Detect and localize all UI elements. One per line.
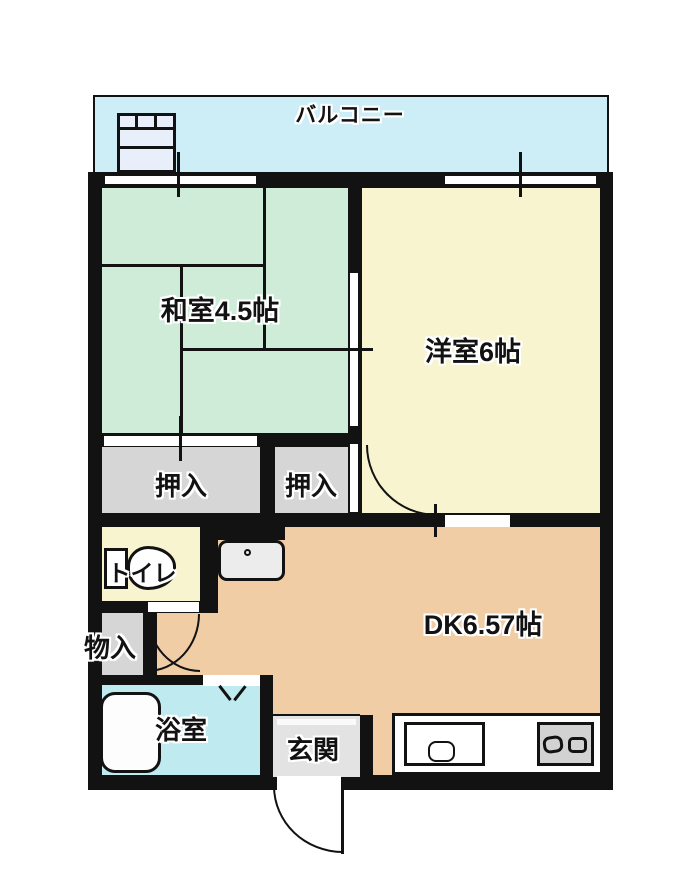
sink-drain [428,741,455,762]
washbasin-faucet [244,549,251,556]
toilet-label: トイレ [98,554,186,588]
washitsu-label: 和室4.5帖 [130,289,310,328]
window-center-tick [519,152,522,197]
tatami-line [182,348,348,351]
yoshitsu-label: 洋室6帖 [383,330,563,369]
balcony-label: バルコニー [255,99,445,129]
washer-pan-divider [154,115,157,127]
stove-burner [568,737,587,753]
bath-door-opening [203,675,260,686]
entrance-label: 玄関 [268,730,358,767]
entrance-door-panel [341,786,344,854]
dk-label: DK6.57帖 [393,603,573,642]
fusuma-center-tick [179,416,182,461]
washer-pan-icon [117,113,176,173]
yoshitsu-door-opening [445,515,510,527]
entrance-right-wall [360,715,373,775]
sliding-window-left [103,174,258,186]
entrance-step [277,719,356,725]
washer-pan-line [119,127,174,130]
storage-label: 物入 [70,628,150,665]
window-center-tick [177,152,180,197]
toilet-door [147,601,200,613]
tatami-line [102,264,266,267]
bath-label: 浴室 [136,710,226,747]
basin-back-wall [218,527,285,540]
entrance-door-swing-arc [273,786,343,853]
closet-left-label: 押入 [131,466,231,503]
washbasin-icon [218,540,285,581]
washer-pan-divider [135,115,138,127]
closet-right-label: 押入 [261,466,361,503]
floor-plan: バルコニー [0,0,700,871]
washer-pan-line [119,146,174,149]
sliding-door-tick [333,348,373,351]
